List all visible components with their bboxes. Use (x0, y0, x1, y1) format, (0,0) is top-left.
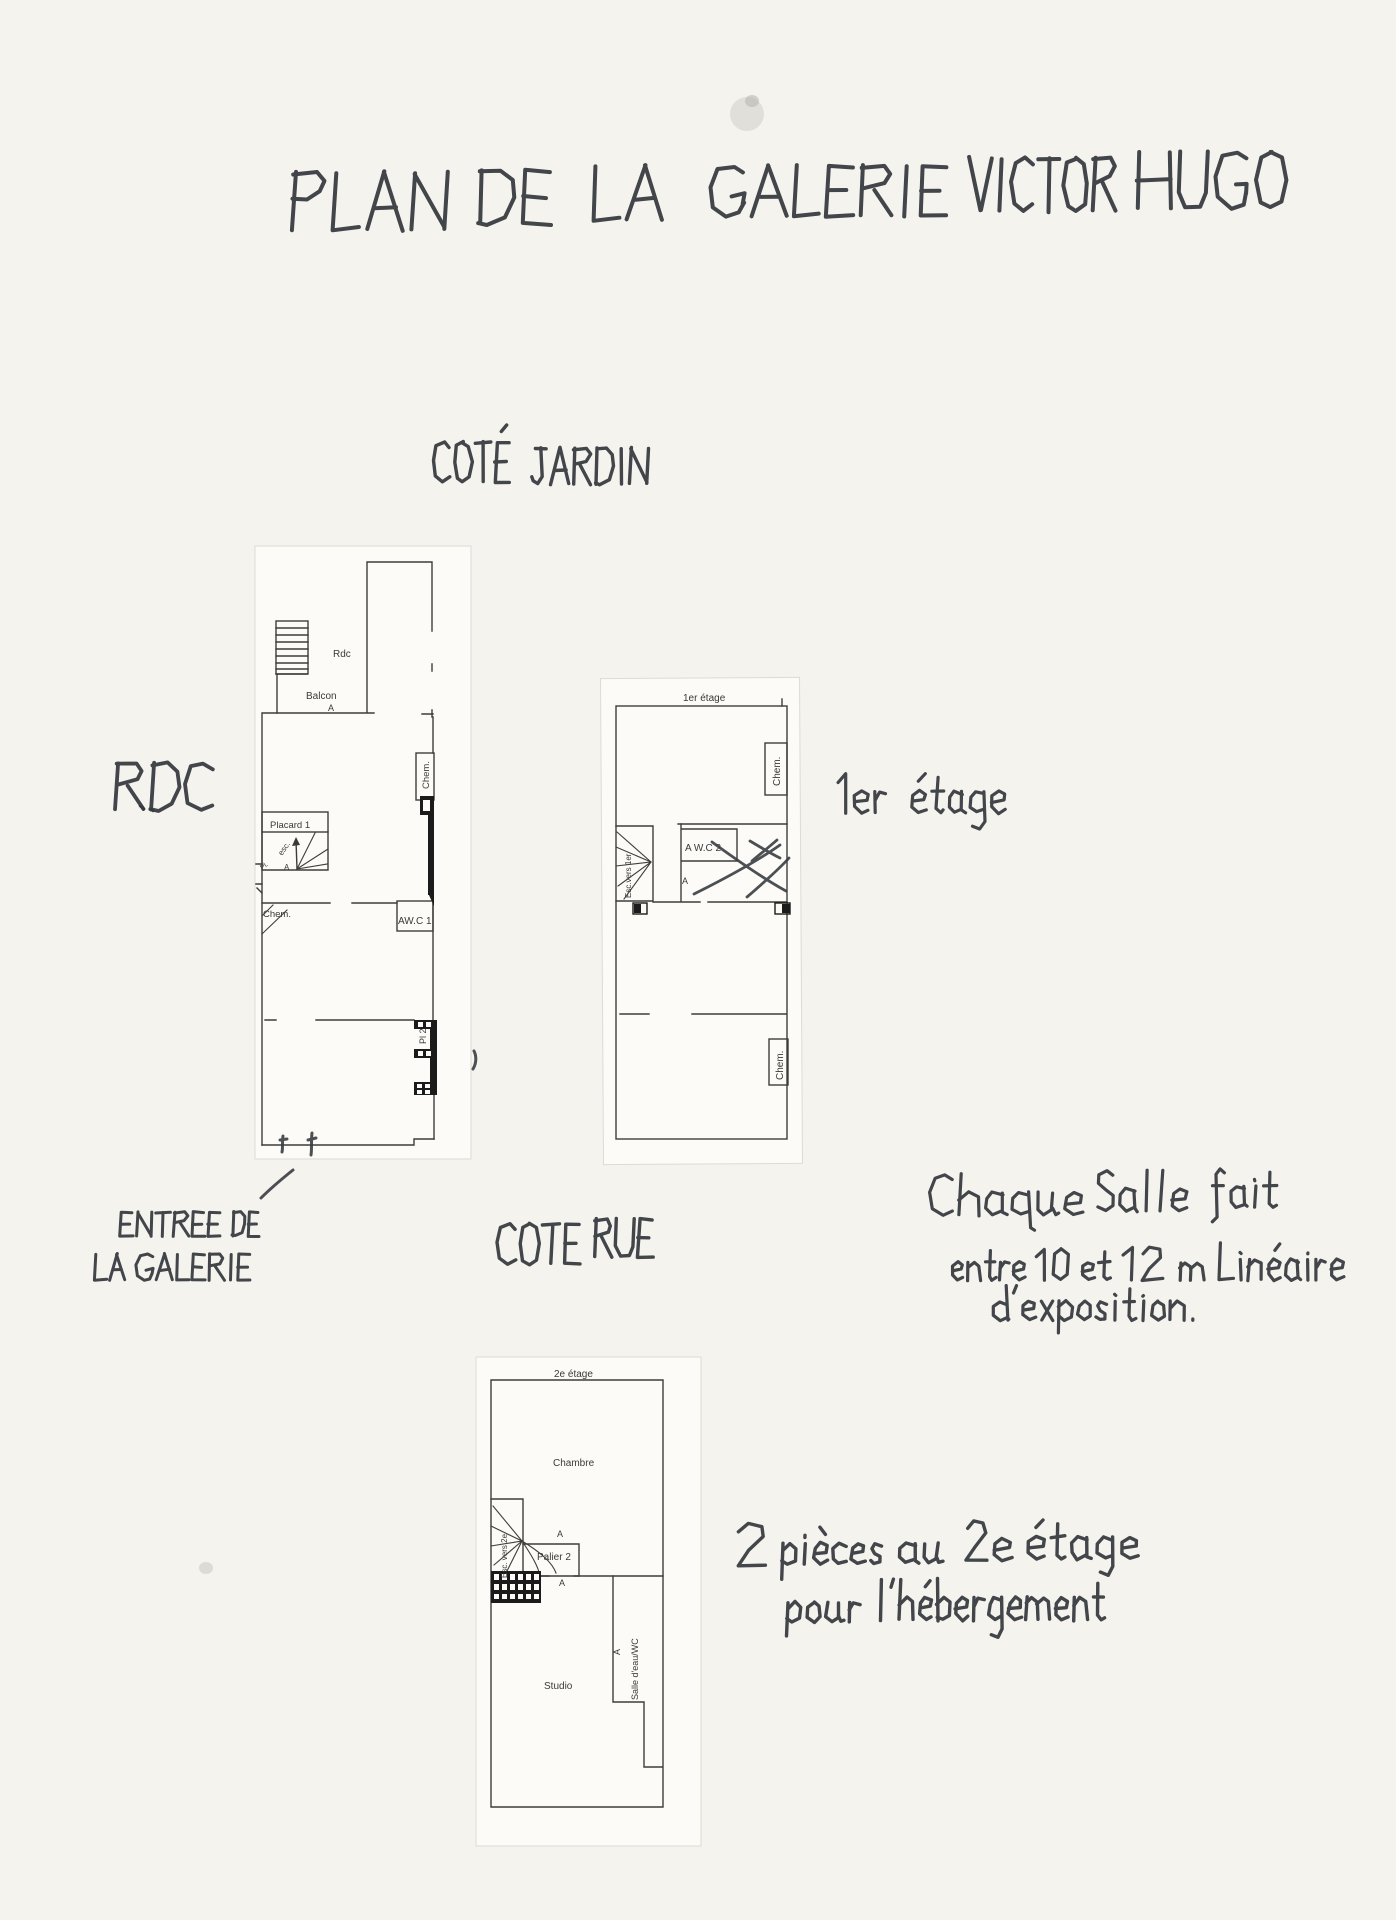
svg-text:Chem.: Chem. (263, 909, 291, 920)
svg-text:Chem.: Chem. (421, 761, 432, 789)
svg-text:1er étage: 1er étage (683, 693, 726, 704)
svg-text:Chem.: Chem. (775, 1051, 786, 1080)
svg-text:Rdc: Rdc (333, 649, 351, 660)
svg-text:Chambre: Chambre (553, 1458, 595, 1469)
svg-text:Pl 2: Pl 2 (418, 1028, 428, 1044)
svg-text:Chem.: Chem. (772, 757, 783, 786)
svg-text:Esc.vers 1er: Esc.vers 1er (624, 853, 633, 898)
svg-text:Studio: Studio (544, 1681, 573, 1692)
svg-text:A: A (682, 876, 688, 886)
svg-text:Salle d'eau/WC: Salle d'eau/WC (630, 1638, 640, 1700)
svg-text:2e étage: 2e étage (554, 1369, 593, 1380)
svg-text:Palier 2: Palier 2 (537, 1552, 571, 1563)
svg-text:A: A (612, 1649, 622, 1655)
svg-text:Balcon: Balcon (306, 691, 337, 702)
svg-text:A: A (284, 863, 290, 872)
svg-text:Esc. vers 2e: Esc. vers 2e (500, 1533, 509, 1578)
svg-text:AW.C 1: AW.C 1 (398, 916, 432, 927)
svg-text:A: A (328, 703, 334, 713)
svg-text:A: A (559, 1578, 565, 1588)
svg-text:Placard 1: Placard 1 (270, 820, 310, 831)
svg-text:A: A (557, 1529, 563, 1539)
svg-text:A W.C 2: A W.C 2 (685, 843, 722, 854)
